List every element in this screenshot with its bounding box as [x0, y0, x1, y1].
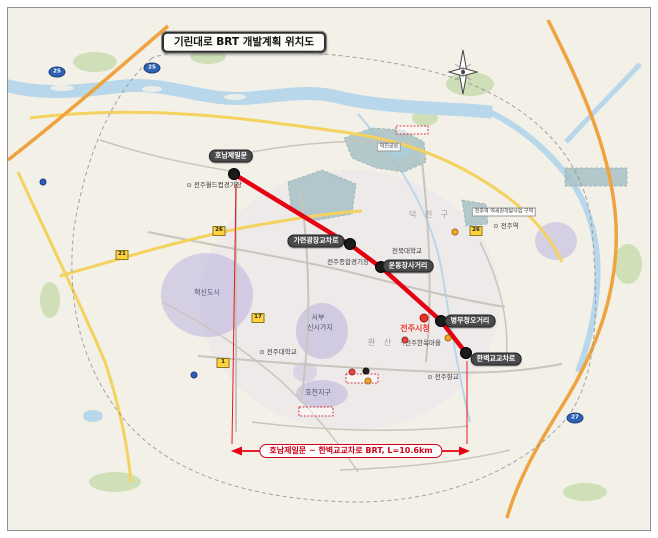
expressway-shield-icon: 25: [49, 67, 66, 78]
poi-marker: [363, 368, 370, 375]
route-stop-label: 한벽교교차로: [471, 353, 522, 366]
city-hall-label: 전주시청: [400, 325, 429, 333]
poi-marker: [402, 337, 409, 344]
landmark-label: 전북대학교: [392, 248, 422, 255]
route-stop-label: 운동장사거리: [383, 260, 434, 273]
landmark-label: ⊙ 전주향교: [427, 374, 458, 381]
landmark-label: 전주역 역세권개발사업 구역: [472, 208, 536, 217]
landmark-label: 서부: [312, 315, 325, 322]
national-road-shield-icon: 17: [252, 313, 265, 323]
landmark-label: 효천지구: [305, 390, 331, 397]
landmark-label: 전주종합경기장: [327, 259, 369, 266]
landmark-label: ⊙ 전주월드컵경기장: [186, 182, 241, 189]
map-screenshot: 기린대로 BRT 개발계획 위치도 호남제일문 ~ 한벽교교차로 BRT, L=…: [0, 0, 658, 538]
poi-marker: [40, 179, 47, 186]
national-road-shield-icon: 26: [213, 226, 226, 236]
poi-marker: [365, 378, 372, 385]
city-hall-marker: [420, 314, 429, 323]
district-label: 덕 진 구: [409, 211, 451, 219]
poi-marker: [452, 229, 459, 236]
landmark-label: 덕진공원: [377, 143, 401, 152]
landmark-label: 전주한옥마을: [405, 340, 441, 347]
route-summary-label: 호남제일문 ~ 한벽교교차로 BRT, L=10.6km: [259, 444, 442, 458]
poi-marker: [349, 369, 356, 376]
route-stop-label: 가련광장교차로: [287, 235, 344, 248]
route-stop-dot: [228, 168, 240, 180]
landmark-label: ⊙ 전주대학교: [259, 349, 296, 356]
map-title: 기린대로 BRT 개발계획 위치도: [162, 32, 326, 53]
landmark-label: 신시가지: [307, 325, 333, 332]
route-stop-label: 호남제일문: [209, 150, 253, 163]
route-stop-label: 병무청오거리: [445, 315, 496, 328]
landmark-label: ⊙ 전주역: [493, 223, 518, 230]
national-road-shield-icon: 1: [217, 358, 230, 368]
route-stop-dot: [344, 238, 356, 250]
national-road-shield-icon: 26: [470, 226, 483, 236]
national-road-shield-icon: 21: [116, 250, 129, 260]
expressway-shield-icon: 27: [567, 413, 584, 424]
poi-marker: [445, 335, 452, 342]
poi-marker: [191, 372, 198, 379]
landmark-label: 혁신도시: [194, 290, 220, 297]
expressway-shield-icon: 25: [144, 63, 161, 74]
